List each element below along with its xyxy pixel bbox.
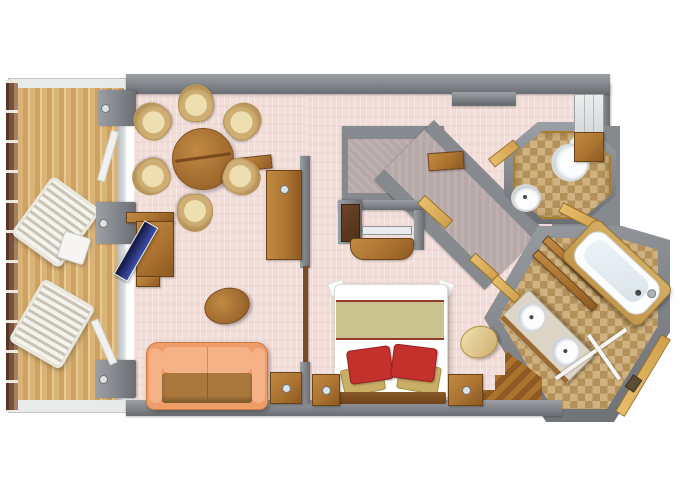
chair-seat xyxy=(138,107,169,138)
cushion-seam xyxy=(207,347,208,373)
door-latch xyxy=(99,375,108,384)
hall-cabinet xyxy=(574,132,604,162)
tv-screen xyxy=(362,226,412,235)
tv-cabinet xyxy=(350,238,414,260)
dining-chair xyxy=(178,84,214,122)
suite-floorplan xyxy=(0,0,680,486)
bed-headboard xyxy=(334,392,446,404)
sink-drain xyxy=(529,314,535,320)
red-pillow xyxy=(346,345,394,385)
balcony-glass-doors xyxy=(118,92,126,400)
hall-console xyxy=(427,151,464,171)
dining-chair xyxy=(177,194,213,232)
wardrobe-door-seam xyxy=(584,95,585,133)
sideboard-knob xyxy=(280,185,289,194)
door-frame xyxy=(96,202,136,244)
chair-seat xyxy=(226,107,257,138)
sofa xyxy=(146,342,268,410)
door-latch xyxy=(101,104,110,113)
door-latch xyxy=(99,219,108,228)
bed-runner-band xyxy=(336,300,444,340)
basin-drain xyxy=(523,195,527,199)
tv-alcove-wall xyxy=(414,210,424,250)
wardrobe-door-seam xyxy=(593,95,594,133)
hall-wardrobe xyxy=(574,94,604,134)
sideboard-cabinet xyxy=(266,170,302,260)
door-frame xyxy=(98,90,136,126)
balcony-bottom-partition xyxy=(8,398,138,413)
desk-drawer xyxy=(136,276,160,287)
sofa-arm xyxy=(149,348,162,403)
wc-washbasin xyxy=(511,184,541,212)
nightstand-knob xyxy=(322,386,331,395)
sofa-back-cushions xyxy=(162,347,252,373)
minibar-cabinet xyxy=(270,372,302,404)
nightstand xyxy=(448,374,483,406)
sink-drain xyxy=(563,348,569,354)
chair-seat xyxy=(185,94,207,116)
door-frame xyxy=(96,360,136,398)
cabinet-knob xyxy=(282,384,291,393)
chair-seat xyxy=(226,162,255,191)
sofa-seat-cushions xyxy=(162,373,252,403)
cushion-seam xyxy=(207,373,208,403)
red-pillow xyxy=(390,343,438,382)
entry-door-recess xyxy=(452,92,516,106)
closet-dark-panel xyxy=(341,204,360,242)
double-bed xyxy=(334,284,446,404)
nightstand xyxy=(312,374,340,406)
balcony-railing xyxy=(6,80,18,412)
nightstand-knob xyxy=(462,386,471,395)
partition-sliding-door xyxy=(303,266,308,364)
chair-seat xyxy=(184,200,206,222)
chair-seat xyxy=(138,162,167,191)
sofa-arm xyxy=(252,348,265,403)
table-leaf-seam xyxy=(175,152,231,163)
